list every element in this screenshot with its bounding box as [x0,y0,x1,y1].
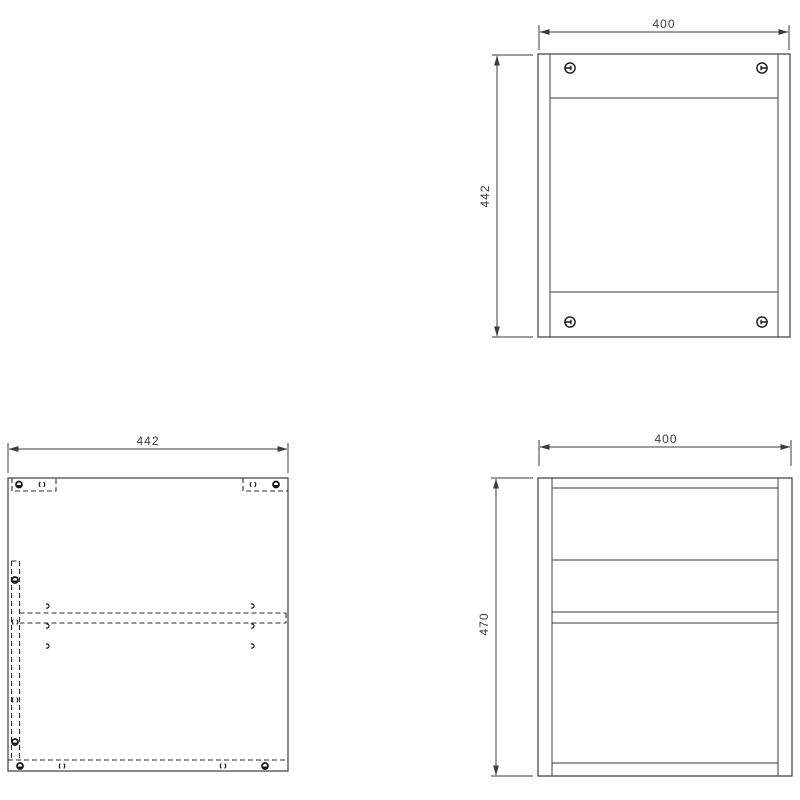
cam-lock-icon [16,482,22,488]
cam-lock-icon [17,763,23,769]
dowel-pin-icon [12,620,18,625]
front-view-outline [538,478,792,776]
cam-lock-icon [262,763,268,769]
screw-hole-icon [251,604,254,608]
dim-label-top-depth: 442 [478,184,492,207]
dim-label-top-width: 400 [652,17,675,31]
technical-drawing-canvas: 400 442 400 470 [0,0,800,800]
side-panel-view: 442 [8,434,288,771]
dimension-top-view-width: 400 [539,17,789,50]
cam-lock-icon [12,577,18,583]
cam-lock-icon [273,482,279,488]
screw-hole-icon [251,624,254,628]
dowel-pin-icon [220,764,226,769]
dim-label-front-width: 400 [654,432,677,446]
cam-screw-icon [757,317,767,327]
assembly-drawing: 400 442 400 470 [0,0,800,800]
dimension-side-panel-width: 442 [8,434,288,473]
cam-screw-icon [757,63,767,73]
front-view: 400 470 [477,432,792,776]
hidden-front-stile [12,561,20,760]
cam-screw-icon [565,317,575,327]
dowel-pin-icon [12,698,18,703]
screw-hole-icon [251,644,254,648]
dimension-front-view-height: 470 [477,478,533,776]
hidden-shelf-groove [20,613,287,623]
screw-hole-icon [46,604,49,608]
dim-label-side-width: 442 [136,434,159,448]
cam-screw-icon [565,63,575,73]
top-view-outline [538,54,790,337]
screw-hole-icon [46,644,49,648]
dowel-pin-icon [250,482,256,487]
dowel-pin-icon [39,482,45,487]
cam-lock-icon [12,739,18,745]
dimension-top-view-depth: 442 [478,55,533,337]
dowel-pin-icon [59,764,65,769]
hidden-top-left-rail [12,478,56,491]
dim-label-front-height: 470 [477,612,491,635]
top-view: 400 442 [478,17,790,337]
side-panel-outline [8,478,288,771]
dimension-front-view-width: 400 [539,432,791,466]
screw-hole-icon [46,624,49,628]
